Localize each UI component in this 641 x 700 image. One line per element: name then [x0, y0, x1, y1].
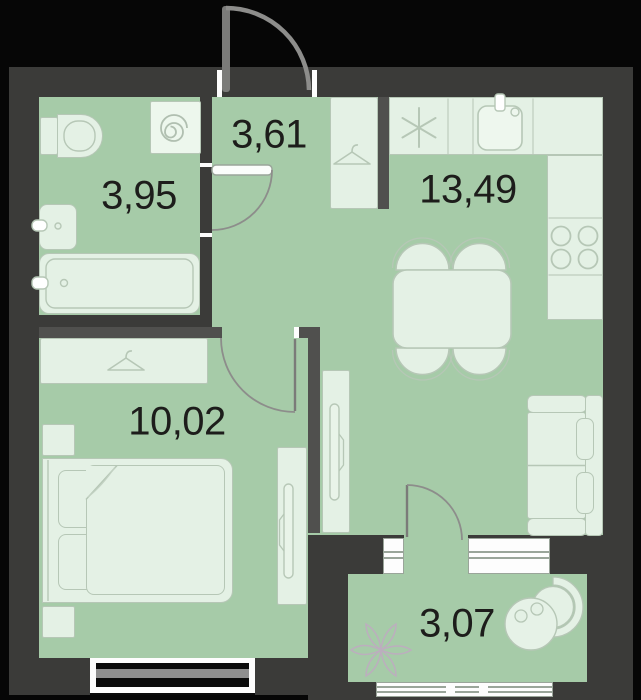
- window-living-balcony-right: [468, 538, 550, 574]
- bathroom-jamb-bottom: [200, 233, 212, 237]
- window-rail: [468, 557, 550, 559]
- window-bedroom-rail-mid: [90, 669, 255, 678]
- window-living-balcony-left: [383, 538, 404, 574]
- wall-bedroom-living: [308, 327, 320, 533]
- room-kitchen-living-area-label: 13,49: [419, 168, 517, 213]
- bed-blanket: [86, 465, 225, 595]
- window-rail: [377, 691, 552, 693]
- window-bedroom-frame-right: [249, 658, 255, 693]
- window-balcony: [376, 682, 553, 697]
- toilet-tank: [40, 117, 58, 155]
- window-rail: [383, 557, 404, 559]
- nightstand-bottom: [42, 606, 75, 638]
- window-bedroom-frame-left: [90, 658, 96, 693]
- room-balcony-area-label: 3,07: [419, 602, 495, 647]
- bedroom-jamb: [294, 327, 299, 338]
- bathtub: [39, 253, 200, 314]
- window-balcony-mullion-right: [479, 683, 488, 696]
- hallway-closet: [330, 97, 378, 209]
- room-bedroom-area-label: 10,02: [128, 400, 226, 445]
- wall-bathroom-right-upper: [200, 97, 212, 163]
- wall-bathroom-right-lower: [200, 237, 212, 315]
- window-bedroom-rail-top: [90, 658, 255, 663]
- nightstand-top: [42, 424, 75, 456]
- bedroom-wardrobe: [40, 338, 208, 384]
- balcony-door-opening: [404, 535, 468, 574]
- entrance-jamb-right: [312, 70, 317, 97]
- room-bathroom-area-label: 3,95: [101, 174, 177, 219]
- entrance-jamb-left: [217, 70, 222, 97]
- toilet-bowl: [57, 114, 103, 158]
- sofa-armrest-bottom: [527, 518, 587, 536]
- tv-stand-living: [322, 370, 350, 533]
- sofa-backrest: [585, 395, 603, 536]
- sofa-pillow-top: [576, 418, 594, 460]
- window-bedroom-rail-bottom: [90, 687, 255, 693]
- bathroom-jamb-top: [200, 163, 212, 167]
- window-balcony-mullion-left: [446, 683, 455, 696]
- room-hallway-area-label: 3,61: [231, 113, 307, 158]
- sofa-pillow-bottom: [576, 472, 594, 514]
- window-rail: [468, 551, 550, 553]
- washing-machine: [150, 101, 201, 154]
- wall-hallway-kitchen-divider: [378, 97, 389, 209]
- kitchen-counter-right: [547, 155, 603, 320]
- bathroom-sink: [39, 204, 77, 250]
- kitchen-counter-top: [389, 97, 603, 155]
- sofa-armrest-top: [527, 395, 587, 413]
- floor-plan-canvas: 3,95 3,61 13,49 10,02 3,07: [0, 0, 641, 700]
- tv-stand-bedroom: [277, 447, 307, 605]
- wall-bedroom-top-left: [39, 327, 222, 338]
- window-rail: [383, 551, 404, 553]
- window-rail: [377, 686, 552, 688]
